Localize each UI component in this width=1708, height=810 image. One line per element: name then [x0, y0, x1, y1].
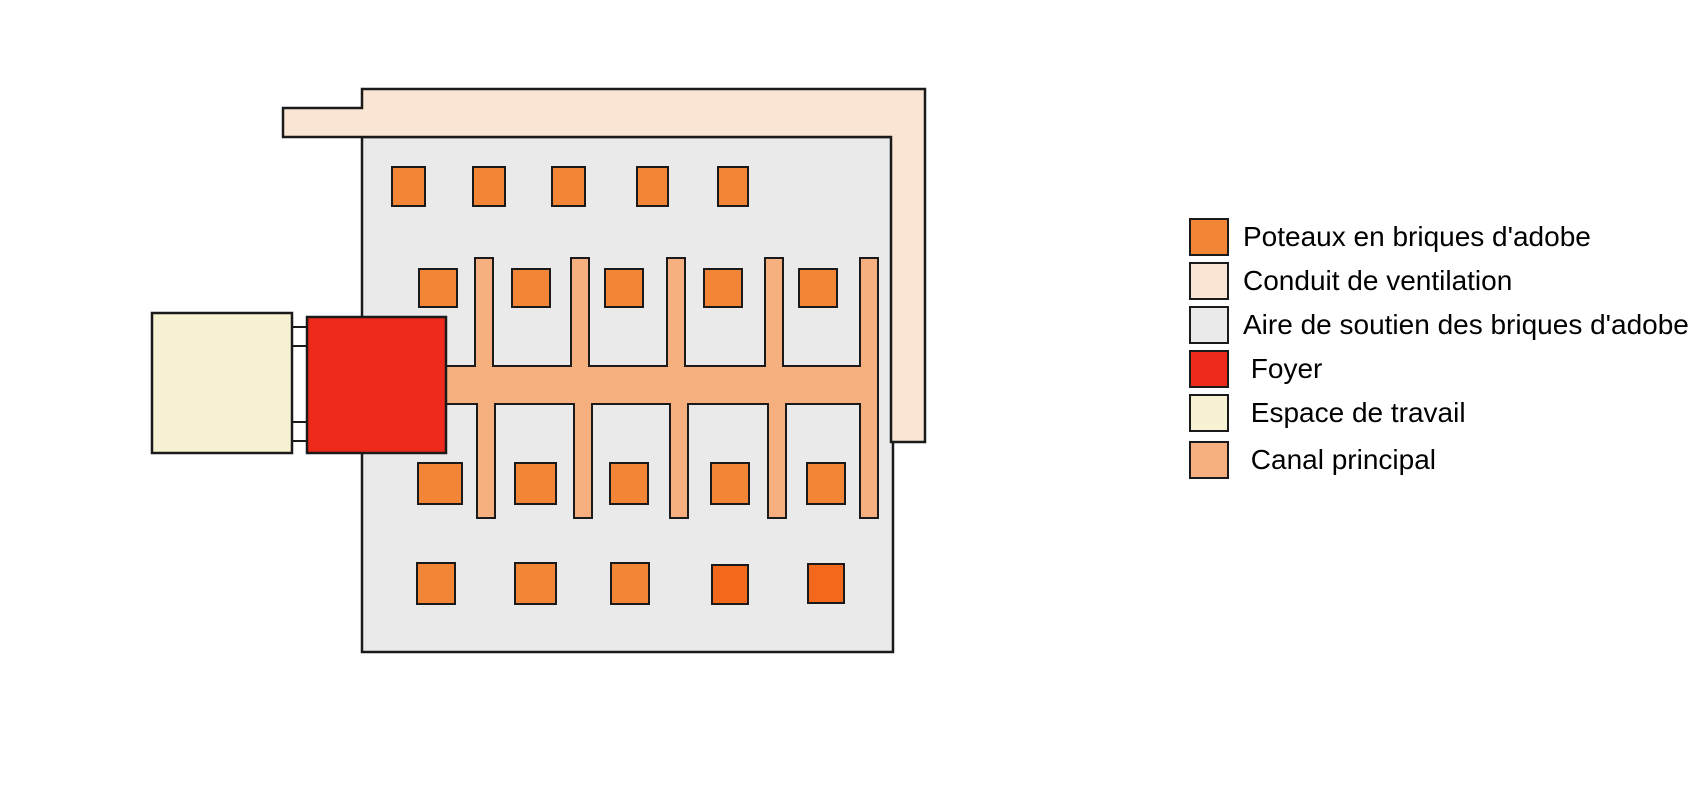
legend-label: Espace de travail [1243, 394, 1466, 432]
color-swatch [1189, 218, 1229, 256]
adobe-pillar [419, 269, 457, 307]
color-swatch [1189, 262, 1229, 300]
legend-label: Foyer [1243, 350, 1322, 388]
adobe-pillar [718, 167, 748, 206]
adobe-pillar [637, 167, 668, 206]
color-swatch [1189, 306, 1229, 344]
adobe-pillar [808, 564, 844, 603]
adobe-pillar [799, 269, 837, 307]
adobe-pillar [473, 167, 505, 206]
legend-label: Poteaux en briques d'adobe [1243, 218, 1591, 256]
adobe-pillar [515, 463, 556, 504]
workspace-area [152, 313, 292, 453]
adobe-pillar [515, 563, 556, 604]
adobe-pillar [610, 463, 648, 504]
legend-label: Conduit de ventilation [1243, 262, 1512, 300]
adobe-pillar [392, 167, 425, 206]
adobe-pillar [552, 167, 585, 206]
adobe-pillar [711, 463, 749, 504]
adobe-pillar [807, 463, 845, 504]
adobe-pillar [611, 563, 649, 604]
color-swatch [1189, 394, 1229, 432]
adobe-pillar [418, 463, 462, 504]
legend: Poteaux en briques d'adobe Conduit de ve… [1189, 218, 1689, 479]
legend-item-support-area: Aire de soutien des briques d'adobe [1189, 306, 1689, 344]
adobe-pillar [712, 565, 748, 604]
adobe-pillar [417, 563, 455, 604]
legend-item-adobe-pillars: Poteaux en briques d'adobe [1189, 218, 1689, 256]
color-swatch [1189, 441, 1229, 479]
color-swatch [1189, 350, 1229, 388]
legend-label: Aire de soutien des briques d'adobe [1243, 306, 1689, 344]
adobe-pillar [704, 269, 742, 307]
kiln-plan-figure: Poteaux en briques d'adobe Conduit de ve… [0, 0, 1708, 810]
adobe-pillar [605, 269, 643, 307]
legend-label: Canal principal [1243, 441, 1436, 479]
hearth [307, 317, 446, 453]
legend-item-workspace: Espace de travail [1189, 394, 1689, 432]
legend-item-main-channel: Canal principal [1189, 441, 1689, 479]
adobe-pillar [512, 269, 550, 307]
legend-item-ventilation-duct: Conduit de ventilation [1189, 262, 1689, 300]
legend-item-hearth: Foyer [1189, 350, 1689, 388]
